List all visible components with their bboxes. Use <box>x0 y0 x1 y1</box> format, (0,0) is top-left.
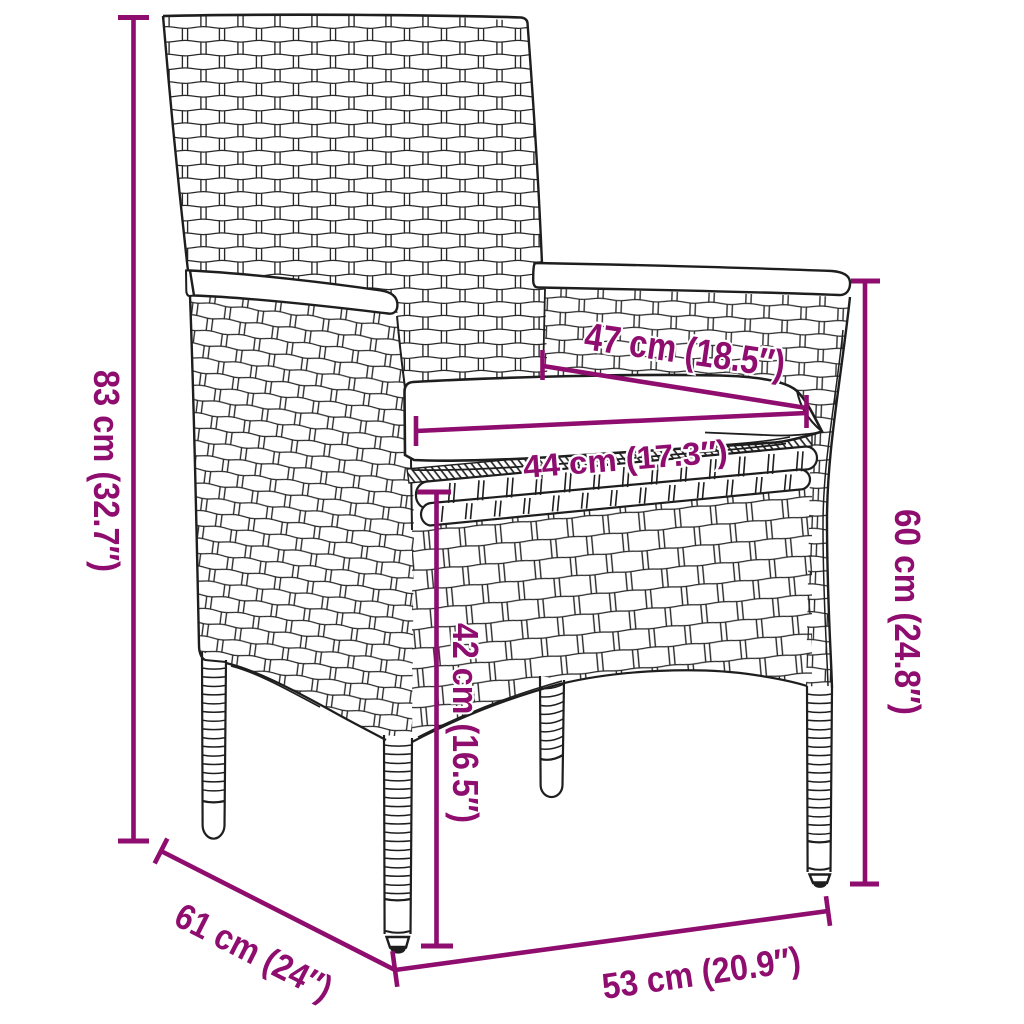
svg-text:83 cm (32.7″): 83 cm (32.7″) <box>86 370 127 572</box>
svg-text:42 cm (16.5″): 42 cm (16.5″) <box>445 623 486 823</box>
svg-text:60 cm (24.8″): 60 cm (24.8″) <box>887 509 928 715</box>
